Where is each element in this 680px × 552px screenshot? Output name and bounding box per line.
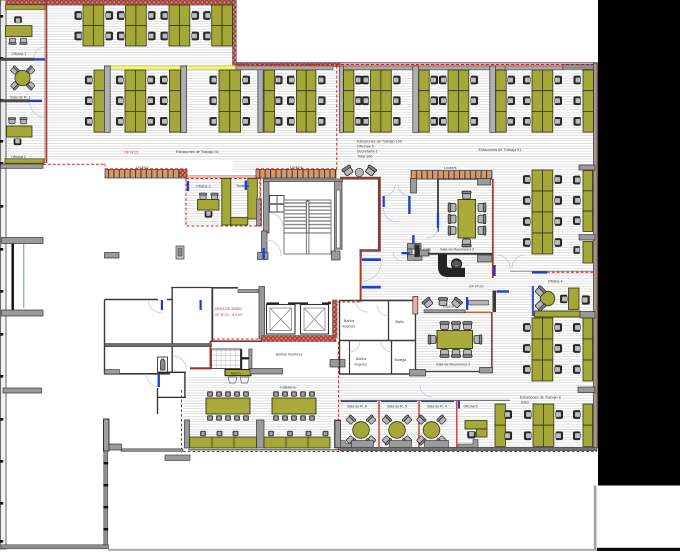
svg-text:Oficina 5: Oficina 5: [464, 405, 478, 409]
svg-text:Sala de R. 5: Sala de R. 5: [387, 405, 407, 409]
svg-text:Sala de Reuniones 3: Sala de Reuniones 3: [436, 363, 470, 367]
svg-text:Sala de Reuniones 2: Sala de Reuniones 2: [440, 248, 474, 252]
svg-text:Estaciones de Trabajo 41: Estaciones de Trabajo 41: [176, 150, 219, 154]
svg-text:AREA DE BAÑO: AREA DE BAÑO: [215, 306, 243, 311]
svg-text:Baños: Baños: [356, 357, 367, 361]
svg-text:Total 106: Total 106: [357, 155, 372, 159]
svg-text:OF N°21: OF N°21: [124, 151, 139, 155]
svg-text:Cafetería: Cafetería: [280, 386, 297, 390]
svg-text:Sala de R. 4: Sala de R. 4: [427, 405, 447, 409]
svg-text:OF N°22: OF N°22: [469, 285, 483, 289]
svg-text:Jefes: Jefes: [520, 401, 529, 405]
svg-text:Estaciones de Trabajo 51: Estaciones de Trabajo 51: [479, 148, 522, 152]
svg-text:Bodega: Bodega: [237, 184, 249, 188]
svg-text:Bodega: Bodega: [395, 358, 407, 362]
svg-text:Baños hombres: Baños hombres: [276, 353, 303, 357]
svg-text:Baños: Baños: [344, 319, 355, 323]
svg-text:OF N°21 - 8.4 m²: OF N°21 - 8.4 m²: [215, 313, 244, 317]
svg-text:Sala de R. 6: Sala de R. 6: [347, 405, 367, 409]
svg-text:Baño: Baño: [396, 320, 405, 324]
svg-text:Estaciones de Trabajo 100: Estaciones de Trabajo 100: [357, 140, 402, 144]
svg-text:mujeres: mujeres: [354, 363, 367, 367]
svg-text:Oficinas 5: Oficinas 5: [357, 145, 374, 149]
svg-text:Oficina 1: Oficina 1: [12, 52, 27, 56]
svg-text:Estaciones de Trabajo 8: Estaciones de Trabajo 8: [520, 396, 561, 400]
svg-text:Lockers: Lockers: [444, 166, 457, 170]
svg-text:Sala de R. 1: Sala de R. 1: [10, 95, 31, 99]
svg-text:Café: Café: [423, 248, 431, 252]
svg-text:Oficina 2: Oficina 2: [11, 155, 26, 159]
svg-text:Oficina 4: Oficina 4: [548, 280, 563, 284]
svg-text:Espera: Espera: [443, 305, 454, 309]
svg-text:Oficina 3: Oficina 3: [196, 185, 211, 189]
svg-text:mujeres: mujeres: [342, 325, 355, 329]
svg-text:Secretaría 1: Secretaría 1: [357, 150, 378, 154]
svg-text:Mesón: Mesón: [231, 372, 241, 376]
